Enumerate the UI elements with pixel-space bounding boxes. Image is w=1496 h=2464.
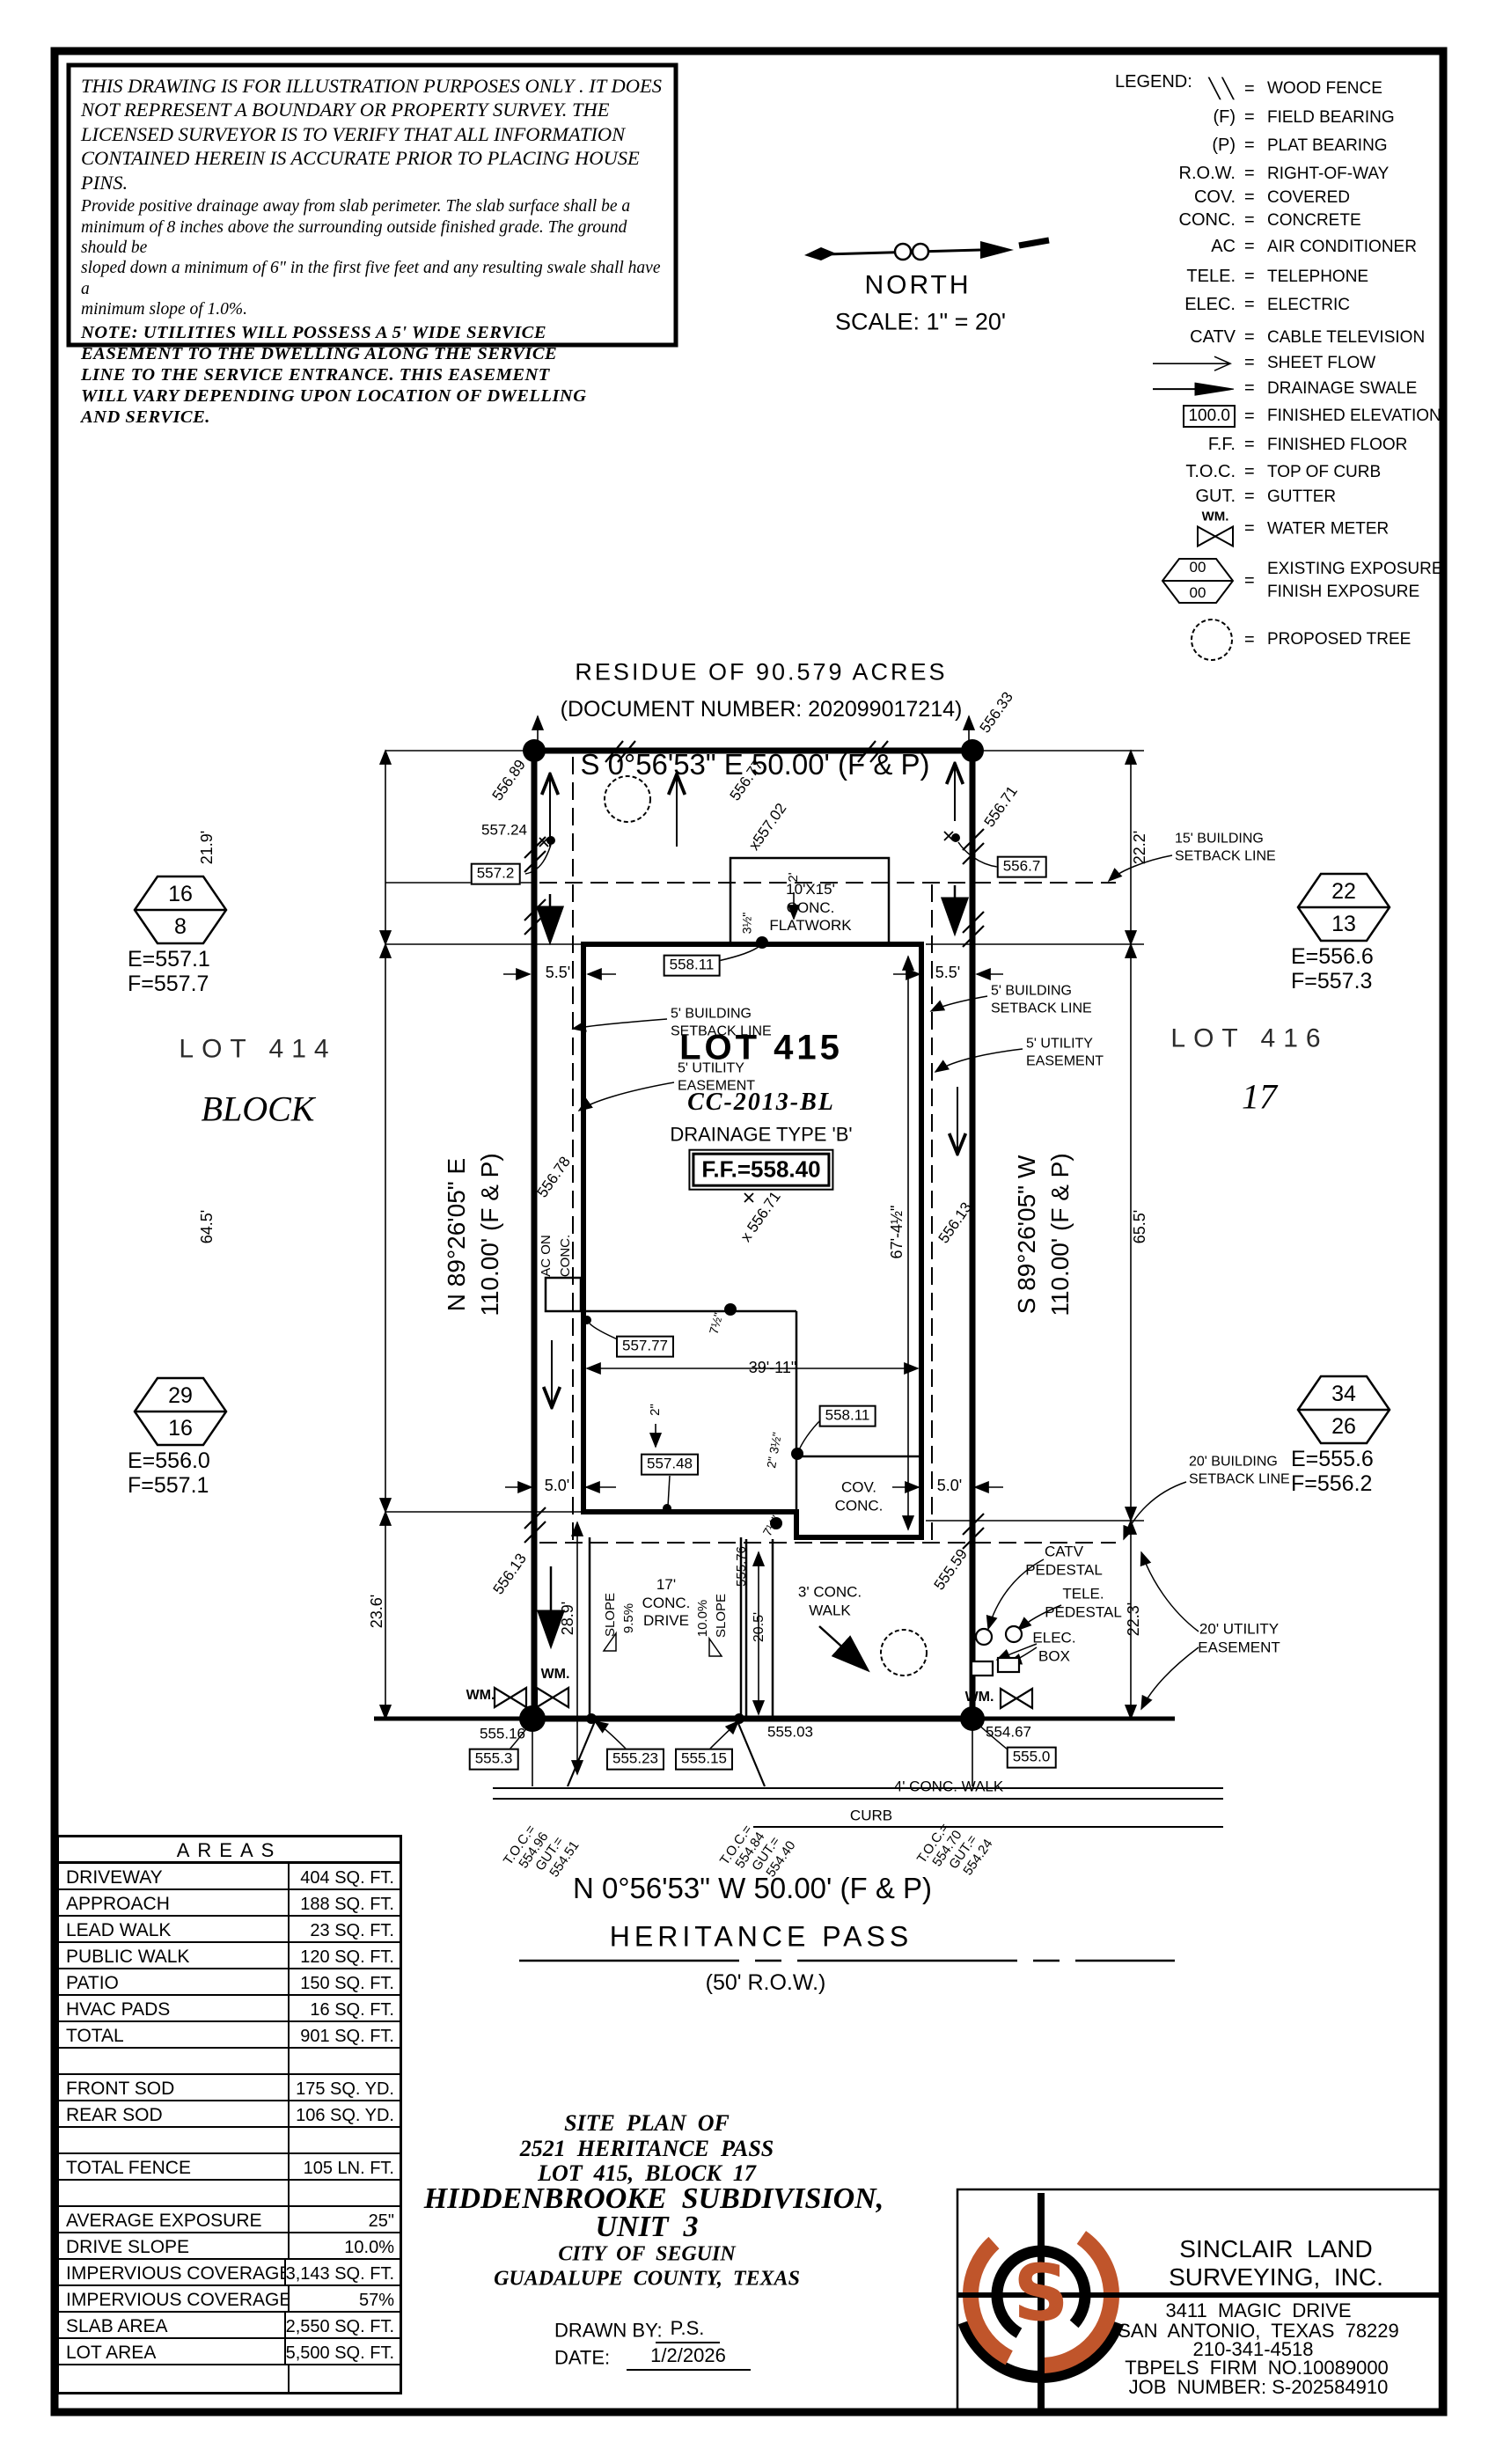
areas-row-label xyxy=(59,2049,290,2073)
setback-15-label: 15' BUILDING SETBACK LINE xyxy=(1175,830,1276,864)
areas-table-row: SLAB AREA2,550 SQ. FT. xyxy=(59,2313,400,2339)
proposed-tree-icon xyxy=(605,776,650,822)
areas-row-value: 120 SQ. FT. xyxy=(290,1943,400,1968)
disclaimer-block: THIS DRAWING IS FOR ILLUSTRATION PURPOSE… xyxy=(81,74,662,428)
plan-label: 2" xyxy=(648,1404,664,1416)
areas-row-value: 5,500 SQ. FT. xyxy=(286,2339,400,2364)
areas-row-value: 901 SQ. FT. xyxy=(290,2022,400,2047)
plan-label: 65.5' xyxy=(1131,1210,1150,1243)
proposed-tree-icon xyxy=(881,1630,927,1676)
exposure-hex-icon: 00 00 xyxy=(1160,554,1236,607)
plan-label: TELE. PEDESTAL xyxy=(1045,1585,1122,1621)
north-arrow-icon xyxy=(804,240,1049,260)
plan-label: CATV PEDESTAL xyxy=(1025,1543,1103,1579)
plan-label: 555.03 xyxy=(767,1724,813,1742)
areas-table-row: APPROACH188 SQ. FT. xyxy=(59,1890,400,1917)
plan-label: 5.0' xyxy=(937,1477,962,1496)
legend-item: WM.=WATER METER xyxy=(1111,510,1389,549)
legend-item: CATV=CABLE TELEVISION xyxy=(1111,326,1425,349)
legend-item-desc: EXISTING EXPOSURE FINISH EXPOSURE xyxy=(1267,558,1443,603)
finished-elevation-icon: 100.0 xyxy=(1183,405,1236,428)
utilities-note: NOTE: UTILITIES WILL POSSESS A 5' WIDE S… xyxy=(81,322,662,429)
areas-row-label: IMPERVIOUS COVERAGE % xyxy=(59,2286,290,2311)
areas-row-value xyxy=(290,2365,400,2392)
areas-table-row: DRIVE SLOPE10.0% xyxy=(59,2233,400,2260)
areas-row-label xyxy=(59,2365,290,2392)
exposure-marker-value: F=557.1 xyxy=(128,1472,209,1500)
areas-table-row: HVAC PADS16 SQ. FT. xyxy=(59,1996,400,2022)
logo-letter: S xyxy=(1013,2248,1068,2339)
areas-table-row: TOTAL901 SQ. FT. xyxy=(59,2022,400,2049)
legend-item-desc: SHEET FLOW xyxy=(1267,352,1375,375)
legend-item: =SHEET FLOW xyxy=(1111,352,1375,375)
plan-label: 39'-11" xyxy=(749,1359,797,1378)
legend-item-desc: RIGHT-OF-WAY xyxy=(1267,163,1389,186)
legend-item: =DRAINAGE SWALE xyxy=(1111,378,1417,400)
legend-item-desc: TOP OF CURB xyxy=(1267,461,1381,484)
bearing-west-line: N 89°26'05" E xyxy=(442,1158,472,1311)
plan-label: 558.11 xyxy=(664,955,721,977)
plan-label: SLOPE xyxy=(603,1593,619,1637)
areas-table-row xyxy=(59,2128,400,2154)
legend-item: COV.=COVERED xyxy=(1111,187,1350,209)
areas-table-row: LOT AREA5,500 SQ. FT. xyxy=(59,2339,400,2365)
surveyor-name-2: SURVEYING, INC. xyxy=(1169,2263,1383,2292)
exposure-marker-value: 22 xyxy=(1331,878,1356,906)
plan-label: 3½" xyxy=(739,913,754,934)
areas-row-label: FRONT SOD xyxy=(59,2075,290,2100)
plan-label: 20' UTILITY EASEMENT xyxy=(1198,1620,1280,1656)
legend-item: 00 00=EXISTING EXPOSURE FINISH EXPOSURE xyxy=(1111,554,1443,607)
legend-item-desc: DRAINAGE SWALE xyxy=(1267,378,1417,400)
areas-row-value: 25" xyxy=(290,2207,400,2232)
areas-row-label: TOTAL xyxy=(59,2022,290,2047)
areas-table-row xyxy=(59,2049,400,2075)
areas-row-label: DRIVEWAY xyxy=(59,1864,290,1888)
legend-item-desc: CONCRETE xyxy=(1267,209,1361,232)
areas-row-label: LEAD WALK xyxy=(59,1917,290,1941)
utility-pedestal-icons xyxy=(972,1626,1022,1676)
exposure-marker-value: 26 xyxy=(1331,1413,1356,1441)
row-width-label: (50' R.O.W.) xyxy=(706,1969,826,1997)
legend-item-desc: FINISHED ELEVATION xyxy=(1267,405,1441,428)
plan-label: 20' BUILDING SETBACK LINE xyxy=(1189,1453,1290,1487)
areas-row-value: 23 SQ. FT. xyxy=(290,1917,400,1941)
walk-3-label: 3' CONC. WALK xyxy=(798,1583,862,1619)
areas-table-row: LEAD WALK23 SQ. FT. xyxy=(59,1917,400,1943)
flatwork-label: 10'X15' CONC. FLATWORK xyxy=(769,881,851,935)
drive-label: 17' CONC. DRIVE xyxy=(642,1576,691,1631)
legend-item-desc: ELECTRIC xyxy=(1267,294,1350,317)
plan-label: 110.00' (F & P) xyxy=(475,1153,505,1316)
areas-row-label: PATIO xyxy=(59,1969,290,1994)
exposure-marker-value: 8 xyxy=(174,913,187,941)
areas-table-row xyxy=(59,2365,400,2392)
plan-label: 554.67 xyxy=(986,1724,1031,1742)
areas-row-value xyxy=(290,2181,400,2205)
legend-item-desc: CABLE TELEVISION xyxy=(1267,326,1425,349)
plan-label: 110.00' (F & P) xyxy=(1045,1153,1075,1316)
plan-label: 556.7 xyxy=(997,856,1047,878)
plan-label: 555.15 xyxy=(675,1749,733,1771)
areas-row-value: 2,550 SQ. FT. xyxy=(286,2313,400,2337)
exposure-marker-value: F=557.3 xyxy=(1291,968,1372,995)
plan-label: 23.6' xyxy=(368,1595,387,1628)
areas-row-label: LOT AREA xyxy=(59,2339,286,2364)
legend-item: F.F.=FINISHED FLOOR xyxy=(1111,434,1407,457)
plan-label: 64.5' xyxy=(198,1210,217,1243)
legend-item-desc: WATER METER xyxy=(1267,517,1389,540)
finished-floor-value: F.F.=558.40 xyxy=(692,1153,830,1187)
water-meter-icons xyxy=(495,1688,1032,1708)
drainage-note: Provide positive drainage away from slab… xyxy=(81,196,662,319)
cc-2013-bl: CC-2013-BL xyxy=(687,1088,835,1118)
plan-label: 557.77 xyxy=(616,1336,674,1358)
areas-table-row: DRIVEWAY404 SQ. FT. xyxy=(59,1864,400,1890)
slope-flag-icon xyxy=(709,1639,722,1656)
plan-label: 10.0% xyxy=(695,1600,711,1638)
areas-row-value: 175 SQ. YD. xyxy=(290,2075,400,2100)
legend-item: TELE.=TELEPHONE xyxy=(1111,266,1368,289)
plan-label: 4' CONC. WALK xyxy=(894,1778,1003,1797)
plan-label: 5' UTILITY EASEMENT xyxy=(1026,1035,1104,1069)
drainage-type: DRAINAGE TYPE 'B' xyxy=(670,1124,852,1148)
legend-item-desc: COVERED xyxy=(1267,187,1350,209)
plan-label: 5.5' xyxy=(546,964,570,983)
areas-table-row: PATIO150 SQ. FT. xyxy=(59,1969,400,1996)
legend-item: ELEC.=ELECTRIC xyxy=(1111,294,1350,317)
legend-item: R.O.W.=RIGHT-OF-WAY xyxy=(1111,163,1389,186)
plan-label: 22.3' xyxy=(1125,1602,1144,1636)
legend-item: (P)=PLAT BEARING xyxy=(1111,135,1388,158)
scale-label: SCALE: 1" = 20' xyxy=(835,308,1006,337)
sheet-flow-icon xyxy=(1151,355,1236,372)
areas-row-label xyxy=(59,2128,290,2152)
areas-table-row xyxy=(59,2181,400,2207)
plan-label: 558.11 xyxy=(819,1405,876,1427)
areas-row-label: SLAB AREA xyxy=(59,2313,286,2337)
wood-fence-icon: ╲╲ xyxy=(1209,77,1236,100)
surveyor-name-1: SINCLAIR LAND xyxy=(1179,2235,1372,2263)
plan-label: 555.76 xyxy=(734,1546,750,1587)
drawn-by-label: DRAWN BY: xyxy=(554,2320,663,2343)
legend-item: GUT.=GUTTER xyxy=(1111,486,1336,509)
legend-item: ╲╲=WOOD FENCE xyxy=(1111,77,1382,100)
plan-label: 21.9' xyxy=(198,831,217,864)
plan-label: CONC. xyxy=(558,1235,574,1277)
bearing-east-line: S 89°26'05" W xyxy=(1012,1155,1042,1315)
areas-table: AREAS DRIVEWAY404 SQ. FT.APPROACH188 SQ.… xyxy=(56,1835,402,2394)
exposure-marker-value: E=555.6 xyxy=(1291,1446,1374,1473)
plan-label: 67'-4½" xyxy=(888,1206,907,1259)
title-address: 2521 HERITANCE PASS xyxy=(520,2136,774,2162)
exposure-marker-value: 13 xyxy=(1331,911,1356,938)
surveyor-job-number: JOB NUMBER: S-202584910 xyxy=(1129,2376,1389,2399)
plan-label: 28.9' xyxy=(559,1602,578,1635)
legend-item-desc: FINISHED FLOOR xyxy=(1267,434,1407,457)
legend-item: 100.0=FINISHED ELEVATION xyxy=(1111,405,1441,428)
plan-label: 22.2' xyxy=(1131,831,1150,864)
legend-item-desc: PROPOSED TREE xyxy=(1267,628,1411,651)
proposed-tree-icon xyxy=(1188,616,1236,664)
plan-label: WM. xyxy=(466,1687,495,1705)
block-label: BLOCK xyxy=(202,1089,315,1132)
title-city: CITY OF SEGUIN xyxy=(558,2243,735,2267)
title-county: GUADALUPE COUNTY, TEXAS xyxy=(494,2268,800,2292)
legend-item: T.O.C.=TOP OF CURB xyxy=(1111,461,1381,484)
plan-label: COV. CONC. xyxy=(835,1478,884,1514)
legend-item-desc: PLAT BEARING xyxy=(1267,135,1388,158)
plan-label: 557.24 xyxy=(481,822,527,840)
plan-label: CURB xyxy=(850,1808,892,1826)
lot-416-label: LOT 416 xyxy=(1170,1023,1328,1056)
legend-item-desc: WOOD FENCE xyxy=(1267,77,1382,100)
plan-label: 555.16 xyxy=(480,1726,525,1744)
legend-item: AC=AIR CONDITIONER xyxy=(1111,236,1417,259)
plan-label: 2' xyxy=(786,872,802,882)
plan-label: WM. xyxy=(541,1666,570,1683)
areas-row-label: REAR SOD xyxy=(59,2101,290,2126)
plan-label: 5.5' xyxy=(935,964,960,983)
exposure-marker-value: F=557.7 xyxy=(128,971,209,998)
areas-row-value: 105 LN. FT. xyxy=(290,2154,400,2179)
areas-row-label: TOTAL FENCE xyxy=(59,2154,290,2179)
document-number: (DOCUMENT NUMBER: 202099017214) xyxy=(561,696,963,723)
plan-label: 555.3 xyxy=(469,1749,519,1771)
block-17-label: 17 xyxy=(1242,1076,1277,1119)
areas-row-value: 57% xyxy=(290,2286,400,2311)
water-meter-icon: WM. xyxy=(1195,510,1236,549)
exposure-marker-value: 16 xyxy=(168,1415,193,1442)
areas-table-row: IMPERVIOUS COVERAGE3,143 SQ. FT. xyxy=(59,2260,400,2286)
lot-415-label: LOT 415 xyxy=(679,1027,843,1070)
plan-label: SLOPE xyxy=(714,1594,730,1638)
exposure-marker-value: 29 xyxy=(168,1382,193,1410)
exposure-marker-value: 16 xyxy=(168,881,193,908)
areas-row-value xyxy=(290,2128,400,2152)
plan-label: 5' BUILDING SETBACK LINE xyxy=(991,982,1092,1016)
date-label: DATE: xyxy=(554,2347,610,2371)
legend-item-desc: AIR CONDITIONER xyxy=(1267,236,1417,259)
areas-table-row: IMPERVIOUS COVERAGE %57% xyxy=(59,2286,400,2313)
north-label: NORTH xyxy=(864,270,971,303)
areas-row-value: 188 SQ. FT. xyxy=(290,1890,400,1915)
drawn-by-value: P.S. xyxy=(671,2317,705,2340)
plan-label: 557.2 xyxy=(471,863,521,885)
areas-table-row: TOTAL FENCE105 LN. FT. xyxy=(59,2154,400,2181)
exposure-marker-value: E=556.0 xyxy=(128,1448,210,1475)
areas-row-value: 3,143 SQ. FT. xyxy=(286,2260,400,2284)
areas-row-value: 106 SQ. YD. xyxy=(290,2101,400,2126)
lot-414-label: LOT 414 xyxy=(179,1034,336,1067)
areas-table-row: PUBLIC WALK120 SQ. FT. xyxy=(59,1943,400,1969)
plan-label: 557.48 xyxy=(641,1454,699,1476)
areas-row-value: 10.0% xyxy=(290,2233,400,2258)
areas-row-label: IMPERVIOUS COVERAGE xyxy=(59,2260,286,2284)
plan-label: WM. xyxy=(965,1689,994,1706)
areas-row-value xyxy=(290,2049,400,2073)
areas-row-label: PUBLIC WALK xyxy=(59,1943,290,1968)
drainage-swale-arrows xyxy=(550,885,955,1668)
plan-label: 9.5% xyxy=(621,1603,637,1633)
exposure-marker-value: E=556.6 xyxy=(1291,943,1374,971)
exposure-marker-value: F=556.2 xyxy=(1291,1470,1372,1498)
residue-acres: RESIDUE OF 90.579 ACRES xyxy=(575,658,947,687)
areas-row-label: AVERAGE EXPOSURE xyxy=(59,2207,290,2232)
drainage-swale-icon xyxy=(1151,380,1236,398)
areas-row-label: HVAC PADS xyxy=(59,1996,290,2020)
areas-row-label: APPROACH xyxy=(59,1890,290,1915)
title-unit: UNIT 3 xyxy=(595,2211,698,2244)
legend-item-desc: FIELD BEARING xyxy=(1267,106,1395,129)
exposure-marker-value: E=557.1 xyxy=(128,946,210,973)
areas-row-value: 150 SQ. FT. xyxy=(290,1969,400,1994)
areas-row-label: DRIVE SLOPE xyxy=(59,2233,290,2258)
date-value: 1/2/2026 xyxy=(650,2344,726,2367)
plan-label: AC ON xyxy=(539,1235,554,1277)
areas-table-row: REAR SOD106 SQ. YD. xyxy=(59,2101,400,2128)
areas-table-title: AREAS xyxy=(59,1837,400,1864)
areas-row-label xyxy=(59,2181,290,2205)
areas-row-value: 16 SQ. FT. xyxy=(290,1996,400,2020)
plan-label: 555.0 xyxy=(1007,1747,1057,1769)
plan-label: 555.23 xyxy=(606,1749,664,1771)
legend-item-desc: GUTTER xyxy=(1267,486,1336,509)
site-plan-sheet: THIS DRAWING IS FOR ILLUSTRATION PURPOSE… xyxy=(0,0,1496,2464)
exposure-marker-value: 34 xyxy=(1331,1381,1356,1408)
plan-label: ELEC. BOX xyxy=(1032,1629,1075,1665)
legend-item-desc: TELEPHONE xyxy=(1267,266,1368,289)
legend-item: (F)=FIELD BEARING xyxy=(1111,106,1395,129)
legend-item: CONC.=CONCRETE xyxy=(1111,209,1361,232)
areas-table-row: FRONT SOD175 SQ. YD. xyxy=(59,2075,400,2101)
areas-row-value: 404 SQ. FT. xyxy=(290,1864,400,1888)
legend-item: =PROPOSED TREE xyxy=(1111,616,1411,664)
street-name: HERITANCE PASS xyxy=(610,1919,913,1954)
plan-label: 20.5' xyxy=(751,1612,768,1642)
plan-label: 5.0' xyxy=(545,1477,569,1496)
spot-points xyxy=(546,833,960,1724)
disclaimer-paragraph: THIS DRAWING IS FOR ILLUSTRATION PURPOSE… xyxy=(81,74,662,194)
title-site-plan-of: SITE PLAN OF xyxy=(564,2110,730,2137)
areas-table-row: AVERAGE EXPOSURE25" xyxy=(59,2207,400,2233)
bearing-south-line: N 0°56'53" W 50.00' (F & P) xyxy=(573,1871,932,1906)
